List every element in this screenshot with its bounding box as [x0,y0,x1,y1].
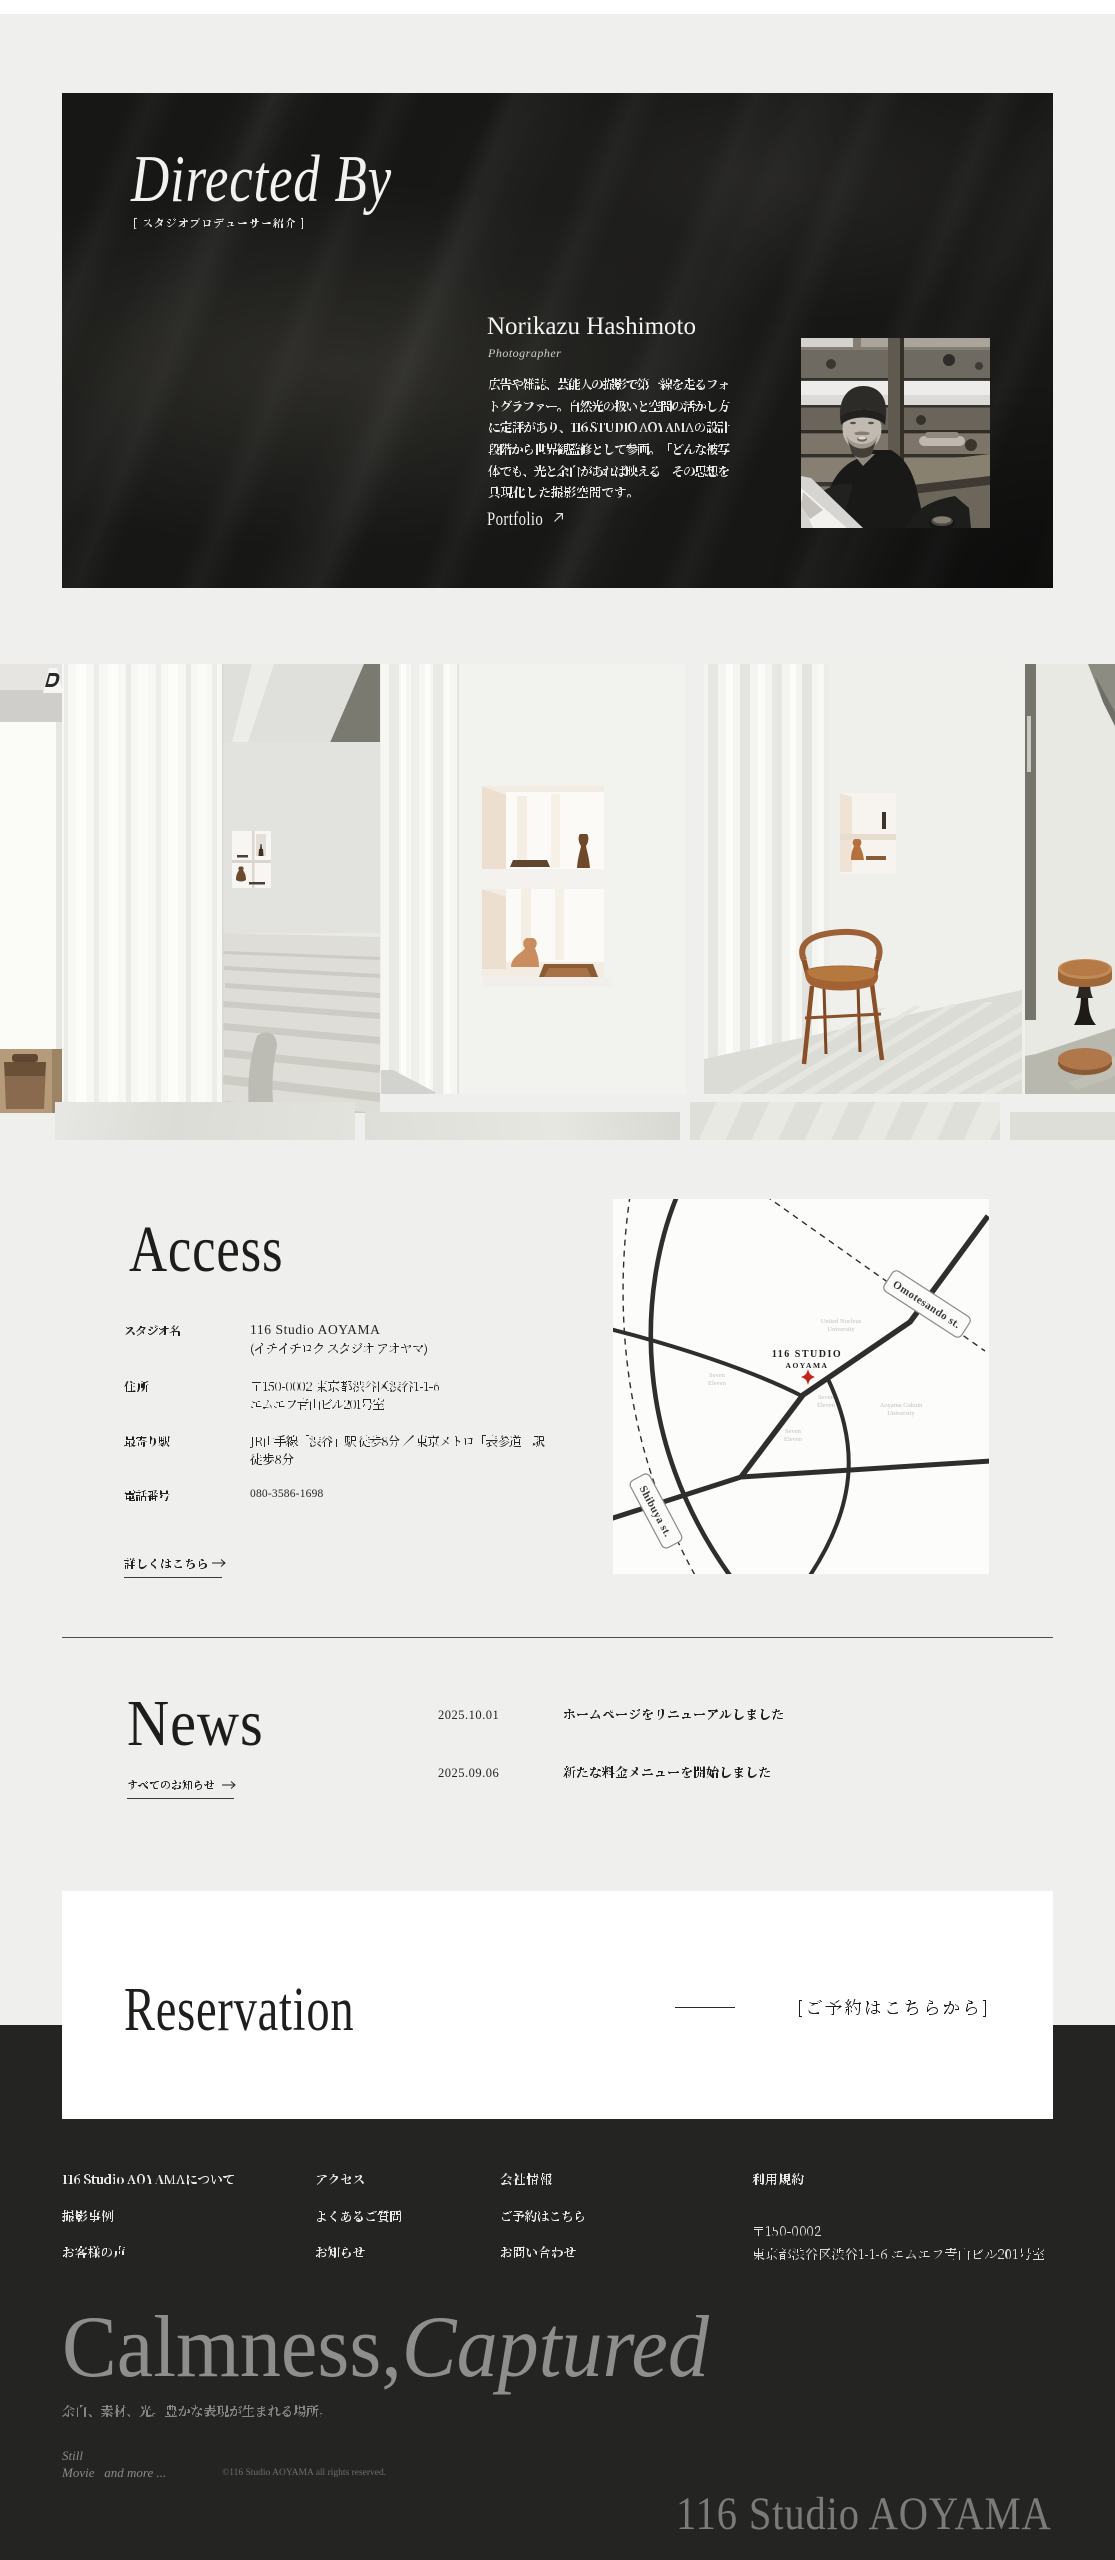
svg-text:Aoyama Gakuin: Aoyama Gakuin [880,1402,924,1409]
svg-text:Eleven: Eleven [817,1402,836,1409]
svg-text:Eleven: Eleven [708,1380,727,1387]
svg-text:University: University [887,1410,915,1417]
svg-text:United Nucleus: United Nucleus [821,1318,862,1325]
svg-text:University: University [827,1326,855,1333]
svg-text:AOYAMA: AOYAMA [786,1361,829,1370]
svg-text:Seven: Seven [785,1428,802,1435]
svg-text:Eleven: Eleven [784,1436,803,1443]
svg-text:116 STUDIO: 116 STUDIO [772,1349,842,1360]
svg-text:Seven: Seven [818,1394,835,1401]
svg-text:Seven: Seven [709,1372,726,1379]
